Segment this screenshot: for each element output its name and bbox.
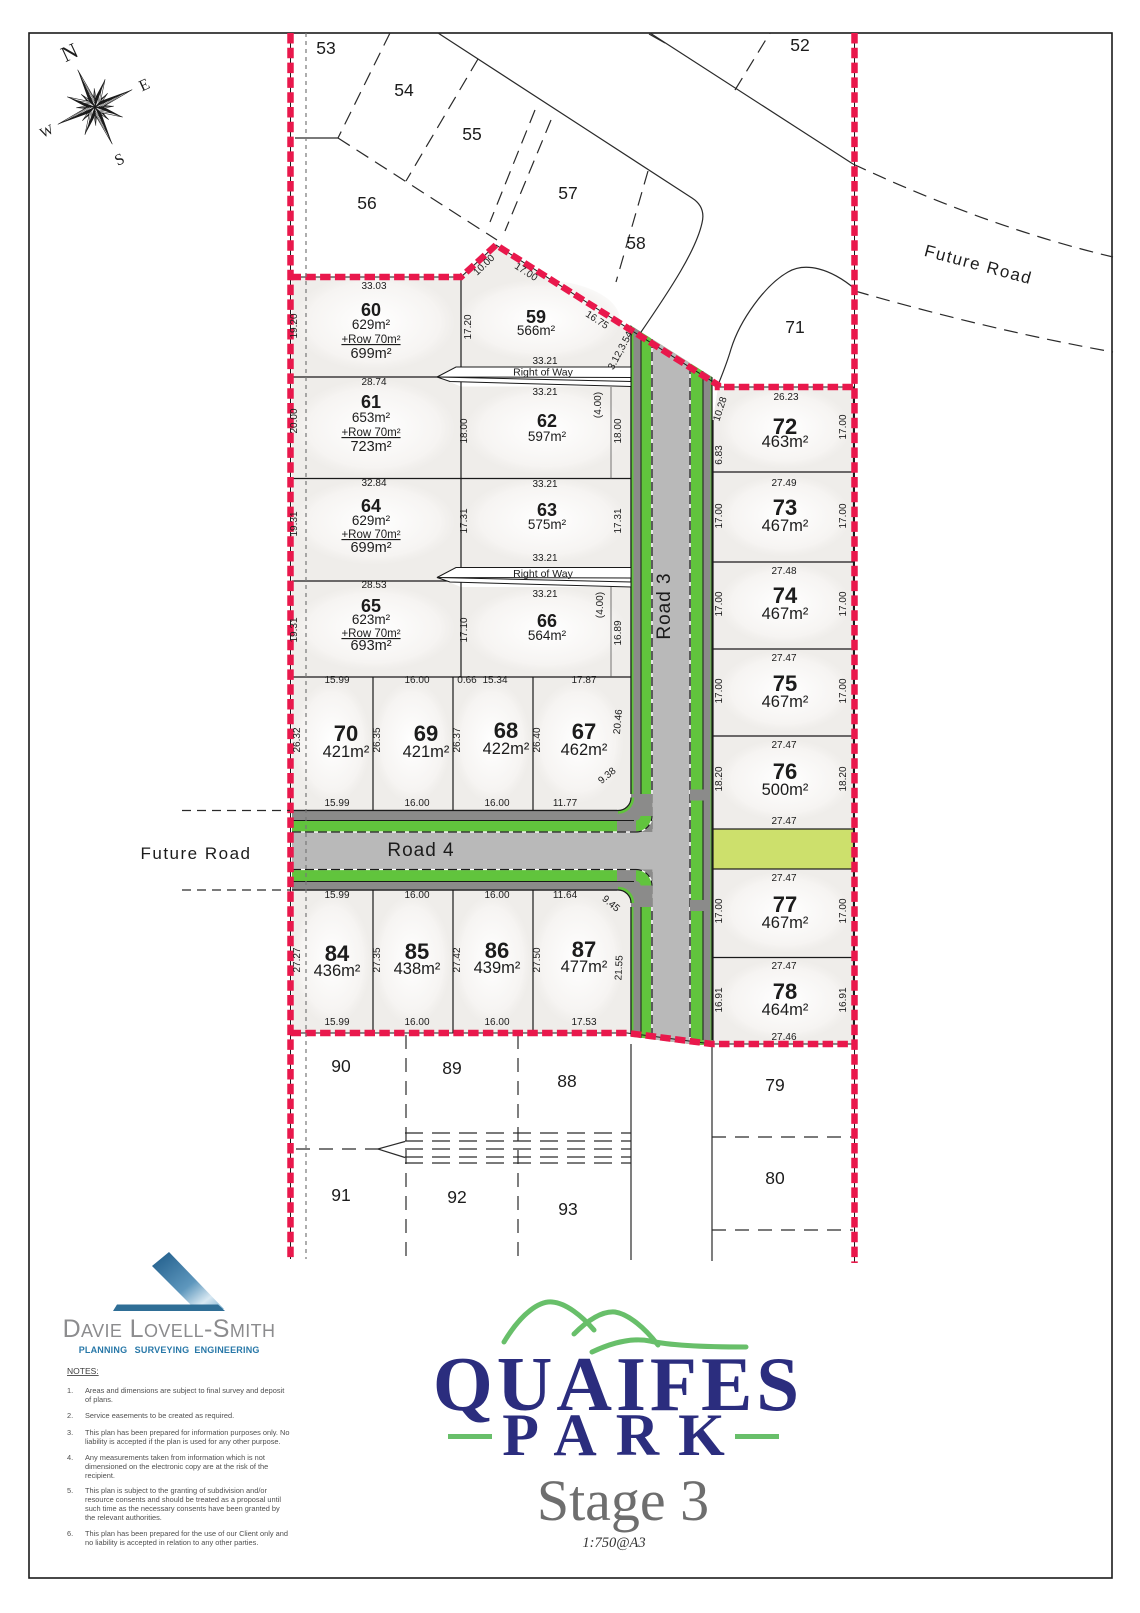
svg-text:4.: 4. [67, 1453, 73, 1462]
svg-text:80: 80 [765, 1168, 785, 1188]
svg-text:16.91: 16.91 [838, 987, 849, 1012]
svg-text:26.40: 26.40 [532, 727, 543, 752]
svg-text:Davie Lovell-Smith: Davie Lovell-Smith [63, 1315, 276, 1343]
svg-text:28.53: 28.53 [361, 580, 386, 591]
svg-text:Future Road: Future Road [922, 241, 1034, 288]
svg-text:such time as the necessary con: such time as the necessary consents have… [85, 1504, 280, 1513]
svg-text:Future Road: Future Road [141, 844, 252, 863]
svg-text:17.00: 17.00 [714, 591, 725, 616]
svg-text:20.00: 20.00 [289, 408, 300, 433]
svg-text:NOTES:: NOTES: [67, 1366, 99, 1376]
svg-text:566m²: 566m² [517, 323, 556, 338]
svg-text:W: W [38, 122, 57, 142]
svg-text:(4.00): (4.00) [593, 392, 604, 418]
svg-text:16.00: 16.00 [404, 798, 429, 809]
svg-text:2.: 2. [67, 1411, 73, 1420]
svg-text:Road 3: Road 3 [654, 572, 675, 639]
svg-text:SURVEYING: SURVEYING [135, 1345, 190, 1355]
svg-text:27.35: 27.35 [372, 947, 383, 972]
svg-text:17.00: 17.00 [838, 591, 849, 616]
svg-text:15.34: 15.34 [482, 675, 507, 686]
svg-text:17.00: 17.00 [838, 414, 849, 439]
svg-text:15.99: 15.99 [324, 890, 349, 901]
svg-text:Areas and dimensions are subje: Areas and dimensions are subject to fina… [85, 1386, 284, 1395]
svg-text:16.00: 16.00 [404, 675, 429, 686]
svg-text:18.00: 18.00 [459, 418, 470, 443]
svg-text:27.47: 27.47 [771, 740, 796, 751]
svg-text:53: 53 [316, 38, 335, 58]
svg-text:27.47: 27.47 [771, 653, 796, 664]
svg-text:26.23: 26.23 [773, 392, 798, 403]
svg-text:(4.00): (4.00) [595, 592, 606, 618]
svg-text:575m²: 575m² [528, 517, 567, 532]
svg-text:Right of Way: Right of Way [513, 367, 573, 379]
svg-text:N: N [57, 37, 82, 66]
svg-text:56: 56 [357, 193, 376, 213]
svg-text:15.99: 15.99 [324, 798, 349, 809]
svg-text:89: 89 [442, 1058, 461, 1078]
svg-text:PARK: PARK [502, 1402, 744, 1468]
svg-text:699m²: 699m² [350, 540, 391, 556]
svg-text:90: 90 [331, 1056, 351, 1076]
svg-text:629m²: 629m² [352, 513, 391, 528]
svg-text:5.: 5. [67, 1486, 73, 1495]
svg-text:438m²: 438m² [394, 960, 441, 978]
svg-text:19.20: 19.20 [289, 313, 300, 338]
svg-text:27.48: 27.48 [771, 566, 796, 577]
svg-text:421m²: 421m² [403, 743, 450, 761]
svg-text:the relevant authorities.: the relevant authorities. [85, 1513, 162, 1522]
svg-text:17.53: 17.53 [571, 1017, 596, 1028]
svg-text:422m²: 422m² [483, 740, 530, 758]
svg-text:629m²: 629m² [352, 317, 391, 332]
svg-text:27.42: 27.42 [452, 947, 463, 972]
svg-text:1.: 1. [67, 1386, 73, 1395]
svg-text:33.21: 33.21 [532, 387, 557, 398]
svg-text:3.: 3. [67, 1428, 73, 1437]
svg-text:16.91: 16.91 [714, 987, 725, 1012]
svg-text:32.84: 32.84 [361, 478, 386, 489]
svg-text:699m²: 699m² [350, 346, 391, 362]
svg-text:E: E [137, 76, 153, 96]
svg-text:17.00: 17.00 [838, 503, 849, 528]
svg-text:26.35: 26.35 [372, 727, 383, 752]
svg-text:11.64: 11.64 [553, 890, 578, 901]
svg-text:27.49: 27.49 [771, 478, 796, 489]
svg-text:500m²: 500m² [762, 781, 809, 799]
svg-text:61: 61 [361, 392, 381, 412]
svg-text:+Row 70m²: +Row 70m² [341, 427, 400, 439]
svg-text:92: 92 [447, 1187, 466, 1207]
svg-text:71: 71 [785, 317, 804, 337]
svg-text:16.89: 16.89 [613, 620, 624, 645]
svg-text:Stage 3: Stage 3 [537, 1468, 709, 1533]
svg-text:33.21: 33.21 [532, 553, 557, 564]
svg-text:55: 55 [462, 124, 481, 144]
svg-text:91: 91 [331, 1185, 350, 1205]
svg-text:15.99: 15.99 [324, 675, 349, 686]
svg-text:11.77: 11.77 [553, 798, 578, 809]
svg-text:477m²: 477m² [561, 958, 608, 976]
svg-text:no liability is accepted in re: no liability is accepted in relation to … [85, 1538, 258, 1547]
svg-text:6.83: 6.83 [714, 445, 725, 465]
svg-text:93: 93 [558, 1199, 577, 1219]
svg-text:Right of Way: Right of Way [513, 568, 573, 580]
svg-text:This plan is subject to the gr: This plan is subject to the granting of … [85, 1486, 268, 1495]
svg-text:463m²: 463m² [762, 433, 809, 451]
svg-text:564m²: 564m² [528, 628, 567, 643]
svg-text:17.10: 17.10 [459, 617, 470, 642]
svg-text:16.00: 16.00 [484, 1017, 509, 1028]
svg-text:26.37: 26.37 [452, 727, 463, 752]
svg-text:18.00: 18.00 [613, 418, 624, 443]
svg-text:17.00: 17.00 [838, 898, 849, 923]
svg-text:1:750@A3: 1:750@A3 [582, 1535, 645, 1551]
svg-text:79: 79 [765, 1075, 784, 1095]
svg-text:62: 62 [537, 411, 557, 431]
svg-text:Any measurements taken from in: Any measurements taken from information … [85, 1453, 265, 1462]
svg-text:33.21: 33.21 [532, 356, 557, 367]
svg-text:16.00: 16.00 [404, 890, 429, 901]
svg-text:623m²: 623m² [352, 612, 391, 627]
svg-text:17.00: 17.00 [714, 678, 725, 703]
svg-text:This plan has been prepared fo: This plan has been prepared for informat… [85, 1428, 289, 1437]
svg-text:19.31: 19.31 [289, 617, 300, 642]
svg-text:57: 57 [558, 183, 577, 203]
svg-text:54: 54 [394, 80, 414, 100]
svg-text:0.66: 0.66 [457, 675, 477, 686]
svg-text:17.00: 17.00 [714, 503, 725, 528]
svg-text:33.21: 33.21 [532, 589, 557, 600]
svg-text:52: 52 [790, 35, 809, 55]
svg-text:18.20: 18.20 [714, 766, 725, 791]
svg-text:17.31: 17.31 [613, 508, 624, 533]
svg-text:19.31: 19.31 [289, 511, 300, 536]
svg-text:Road 4: Road 4 [387, 840, 454, 861]
svg-text:27.50: 27.50 [532, 947, 543, 972]
svg-text:15.99: 15.99 [324, 1017, 349, 1028]
svg-text:This plan has been prepared fo: This plan has been prepared for the use … [85, 1529, 288, 1538]
svg-text:6.: 6. [67, 1529, 73, 1538]
svg-text:17.20: 17.20 [463, 314, 474, 339]
svg-text:462m²: 462m² [561, 741, 608, 759]
svg-text:16.00: 16.00 [484, 798, 509, 809]
svg-text:421m²: 421m² [323, 743, 370, 761]
svg-text:464m²: 464m² [762, 1001, 809, 1019]
svg-text:+Row 70m²: +Row 70m² [341, 334, 400, 346]
svg-text:18.20: 18.20 [838, 766, 849, 791]
svg-text:33.03: 33.03 [361, 281, 386, 292]
svg-text:28.74: 28.74 [361, 377, 386, 388]
svg-text:of plans.: of plans. [85, 1395, 113, 1404]
svg-text:resource consents and should b: resource consents and should be treated … [85, 1495, 281, 1504]
svg-text:Service easements to be create: Service easements to be created as requi… [85, 1411, 234, 1420]
svg-text:467m²: 467m² [762, 914, 809, 932]
svg-text:653m²: 653m² [352, 410, 391, 425]
svg-text:dimensioned on the electronic: dimensioned on the electronic copy are a… [85, 1462, 268, 1471]
svg-text:20.46: 20.46 [612, 708, 625, 734]
svg-text:26.32: 26.32 [292, 727, 303, 752]
svg-text:S: S [112, 150, 127, 169]
svg-text:27.47: 27.47 [771, 961, 796, 972]
svg-text:467m²: 467m² [762, 605, 809, 623]
svg-text:16.00: 16.00 [404, 1017, 429, 1028]
svg-text:439m²: 439m² [474, 959, 521, 977]
svg-text:467m²: 467m² [762, 693, 809, 711]
svg-text:17.31: 17.31 [459, 508, 470, 533]
svg-text:27.27: 27.27 [292, 947, 303, 972]
svg-text:58: 58 [626, 233, 645, 253]
svg-text:recipient.: recipient. [85, 1471, 115, 1480]
svg-text:16.00: 16.00 [484, 890, 509, 901]
svg-text:88: 88 [557, 1071, 576, 1091]
svg-text:liability is accepted if the p: liability is accepted if the plan is use… [85, 1437, 281, 1446]
svg-text:ENGINEERING: ENGINEERING [194, 1345, 259, 1355]
svg-text:17.00: 17.00 [714, 898, 725, 923]
svg-text:436m²: 436m² [314, 962, 361, 980]
svg-text:17.00: 17.00 [838, 678, 849, 703]
svg-text:21.55: 21.55 [613, 955, 625, 981]
svg-text:467m²: 467m² [762, 517, 809, 535]
svg-text:33.21: 33.21 [532, 479, 557, 490]
svg-text:693m²: 693m² [350, 638, 391, 654]
svg-text:597m²: 597m² [528, 429, 567, 444]
svg-text:PLANNING: PLANNING [79, 1345, 128, 1355]
svg-text:27.47: 27.47 [771, 816, 796, 827]
svg-text:27.47: 27.47 [771, 873, 796, 884]
svg-text:723m²: 723m² [350, 439, 391, 455]
svg-text:17.87: 17.87 [571, 675, 596, 686]
svg-text:27.46: 27.46 [771, 1032, 796, 1043]
